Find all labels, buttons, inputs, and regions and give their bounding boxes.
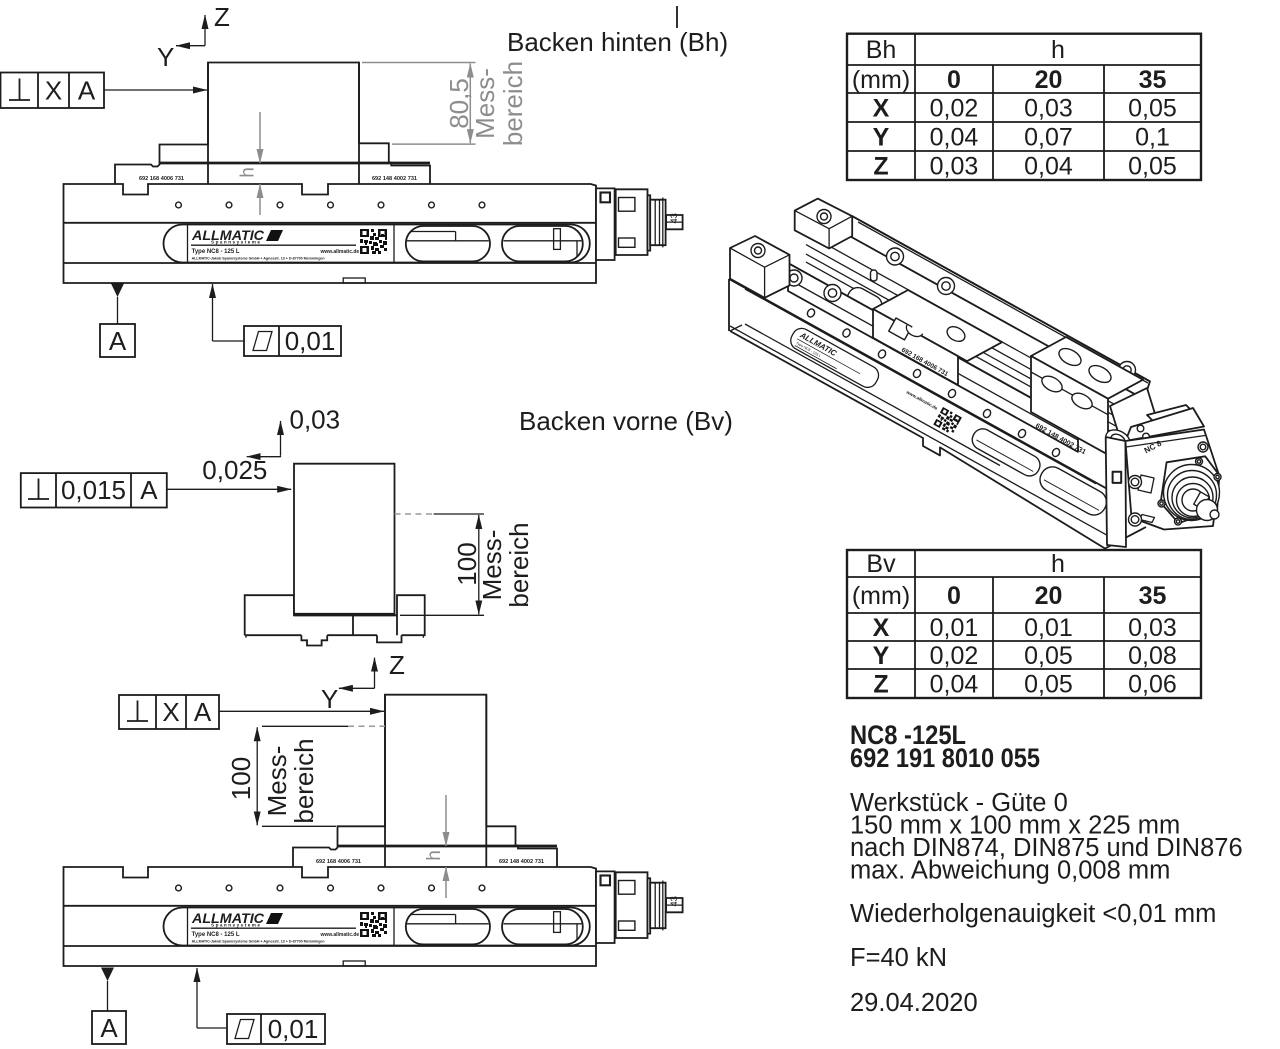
svg-text:0,04: 0,04 xyxy=(930,671,979,699)
svg-text:0,07: 0,07 xyxy=(1024,124,1073,152)
svg-text:100: 100 xyxy=(226,757,256,800)
svg-text:0,01: 0,01 xyxy=(268,1014,319,1044)
svg-text:Z: Z xyxy=(389,650,405,680)
svg-text:0,04: 0,04 xyxy=(930,124,979,152)
svg-text:0,02: 0,02 xyxy=(930,642,979,670)
svg-text:0,04: 0,04 xyxy=(1024,153,1073,181)
svg-text:Y: Y xyxy=(873,642,890,670)
svg-text:0,05: 0,05 xyxy=(1128,95,1177,123)
svg-text:0,03: 0,03 xyxy=(1128,614,1177,642)
svg-text:20: 20 xyxy=(1035,582,1063,610)
svg-text:Y: Y xyxy=(873,124,890,152)
svg-text:0,02: 0,02 xyxy=(930,95,979,123)
svg-text:692 191 8010 055: 692 191 8010 055 xyxy=(850,743,1040,773)
svg-text:0,1: 0,1 xyxy=(1135,124,1170,152)
svg-text:0,01: 0,01 xyxy=(285,326,336,356)
svg-text:A: A xyxy=(194,697,212,727)
svg-text:0,05: 0,05 xyxy=(1024,671,1073,699)
svg-text:Mess-: Mess- xyxy=(470,68,500,139)
svg-text:A: A xyxy=(78,76,96,106)
svg-text:X: X xyxy=(162,697,179,727)
svg-text:A: A xyxy=(100,1013,118,1043)
svg-text:(mm): (mm) xyxy=(852,66,910,94)
svg-text:0,03: 0,03 xyxy=(1024,95,1073,123)
svg-text:max. Abweichung 0,008 mm: max. Abweichung 0,008 mm xyxy=(850,857,1170,885)
svg-text:Z: Z xyxy=(873,671,888,699)
svg-text:Wiederholgenauigkeit <0,01 mm: Wiederholgenauigkeit <0,01 mm xyxy=(850,900,1216,928)
svg-text:X: X xyxy=(873,614,890,642)
svg-text:h: h xyxy=(424,850,445,861)
svg-text:X: X xyxy=(45,76,62,106)
svg-text:F=40 kN: F=40 kN xyxy=(850,944,947,972)
svg-text:692 148 4002 731: 692 148 4002 731 xyxy=(372,176,417,182)
svg-text:0,06: 0,06 xyxy=(1128,671,1177,699)
svg-text:Bv: Bv xyxy=(866,550,896,578)
svg-text:bereich: bereich xyxy=(498,61,528,146)
svg-text:Backen hinten (Bh): Backen hinten (Bh) xyxy=(507,27,728,57)
svg-text:A: A xyxy=(140,475,158,505)
svg-text:Bh: Bh xyxy=(866,36,897,64)
svg-text:0,015: 0,015 xyxy=(61,475,126,505)
svg-text:0,01: 0,01 xyxy=(1024,614,1073,642)
svg-text:bereich: bereich xyxy=(504,522,534,607)
svg-text:0,05: 0,05 xyxy=(1024,642,1073,670)
svg-text:Mess-: Mess- xyxy=(262,746,292,817)
svg-text:20: 20 xyxy=(1035,66,1063,94)
svg-text:h: h xyxy=(1051,550,1065,578)
svg-text:0: 0 xyxy=(947,66,961,94)
svg-text:0,05: 0,05 xyxy=(1128,153,1177,181)
svg-text:h: h xyxy=(1051,36,1065,64)
svg-text:bereich: bereich xyxy=(289,738,319,823)
svg-text:692 168 4006 731: 692 168 4006 731 xyxy=(139,176,184,182)
svg-text:Backen vorne (Bv): Backen vorne (Bv) xyxy=(519,406,733,436)
svg-text:0,03: 0,03 xyxy=(930,153,979,181)
svg-text:Z: Z xyxy=(214,2,230,32)
svg-text:35: 35 xyxy=(1139,66,1167,94)
svg-text:0,08: 0,08 xyxy=(1128,642,1177,670)
svg-text:Y: Y xyxy=(157,42,174,72)
svg-text:Y: Y xyxy=(321,684,338,714)
svg-text:35: 35 xyxy=(1139,582,1167,610)
svg-text:692 168 4006 731: 692 168 4006 731 xyxy=(316,859,361,865)
svg-text:Z: Z xyxy=(873,153,888,181)
svg-text:A: A xyxy=(109,326,127,356)
svg-text:h: h xyxy=(238,167,259,178)
svg-text:(mm): (mm) xyxy=(852,582,910,610)
svg-text:29.04.2020: 29.04.2020 xyxy=(850,989,978,1017)
svg-text:0,01: 0,01 xyxy=(930,614,979,642)
svg-text:Mess-: Mess- xyxy=(477,530,507,601)
svg-text:0: 0 xyxy=(947,582,961,610)
svg-text:0,025: 0,025 xyxy=(202,455,267,485)
svg-text:X: X xyxy=(873,95,890,123)
svg-text:692 148 4002 731: 692 148 4002 731 xyxy=(499,859,544,865)
svg-text:0,03: 0,03 xyxy=(290,405,341,435)
